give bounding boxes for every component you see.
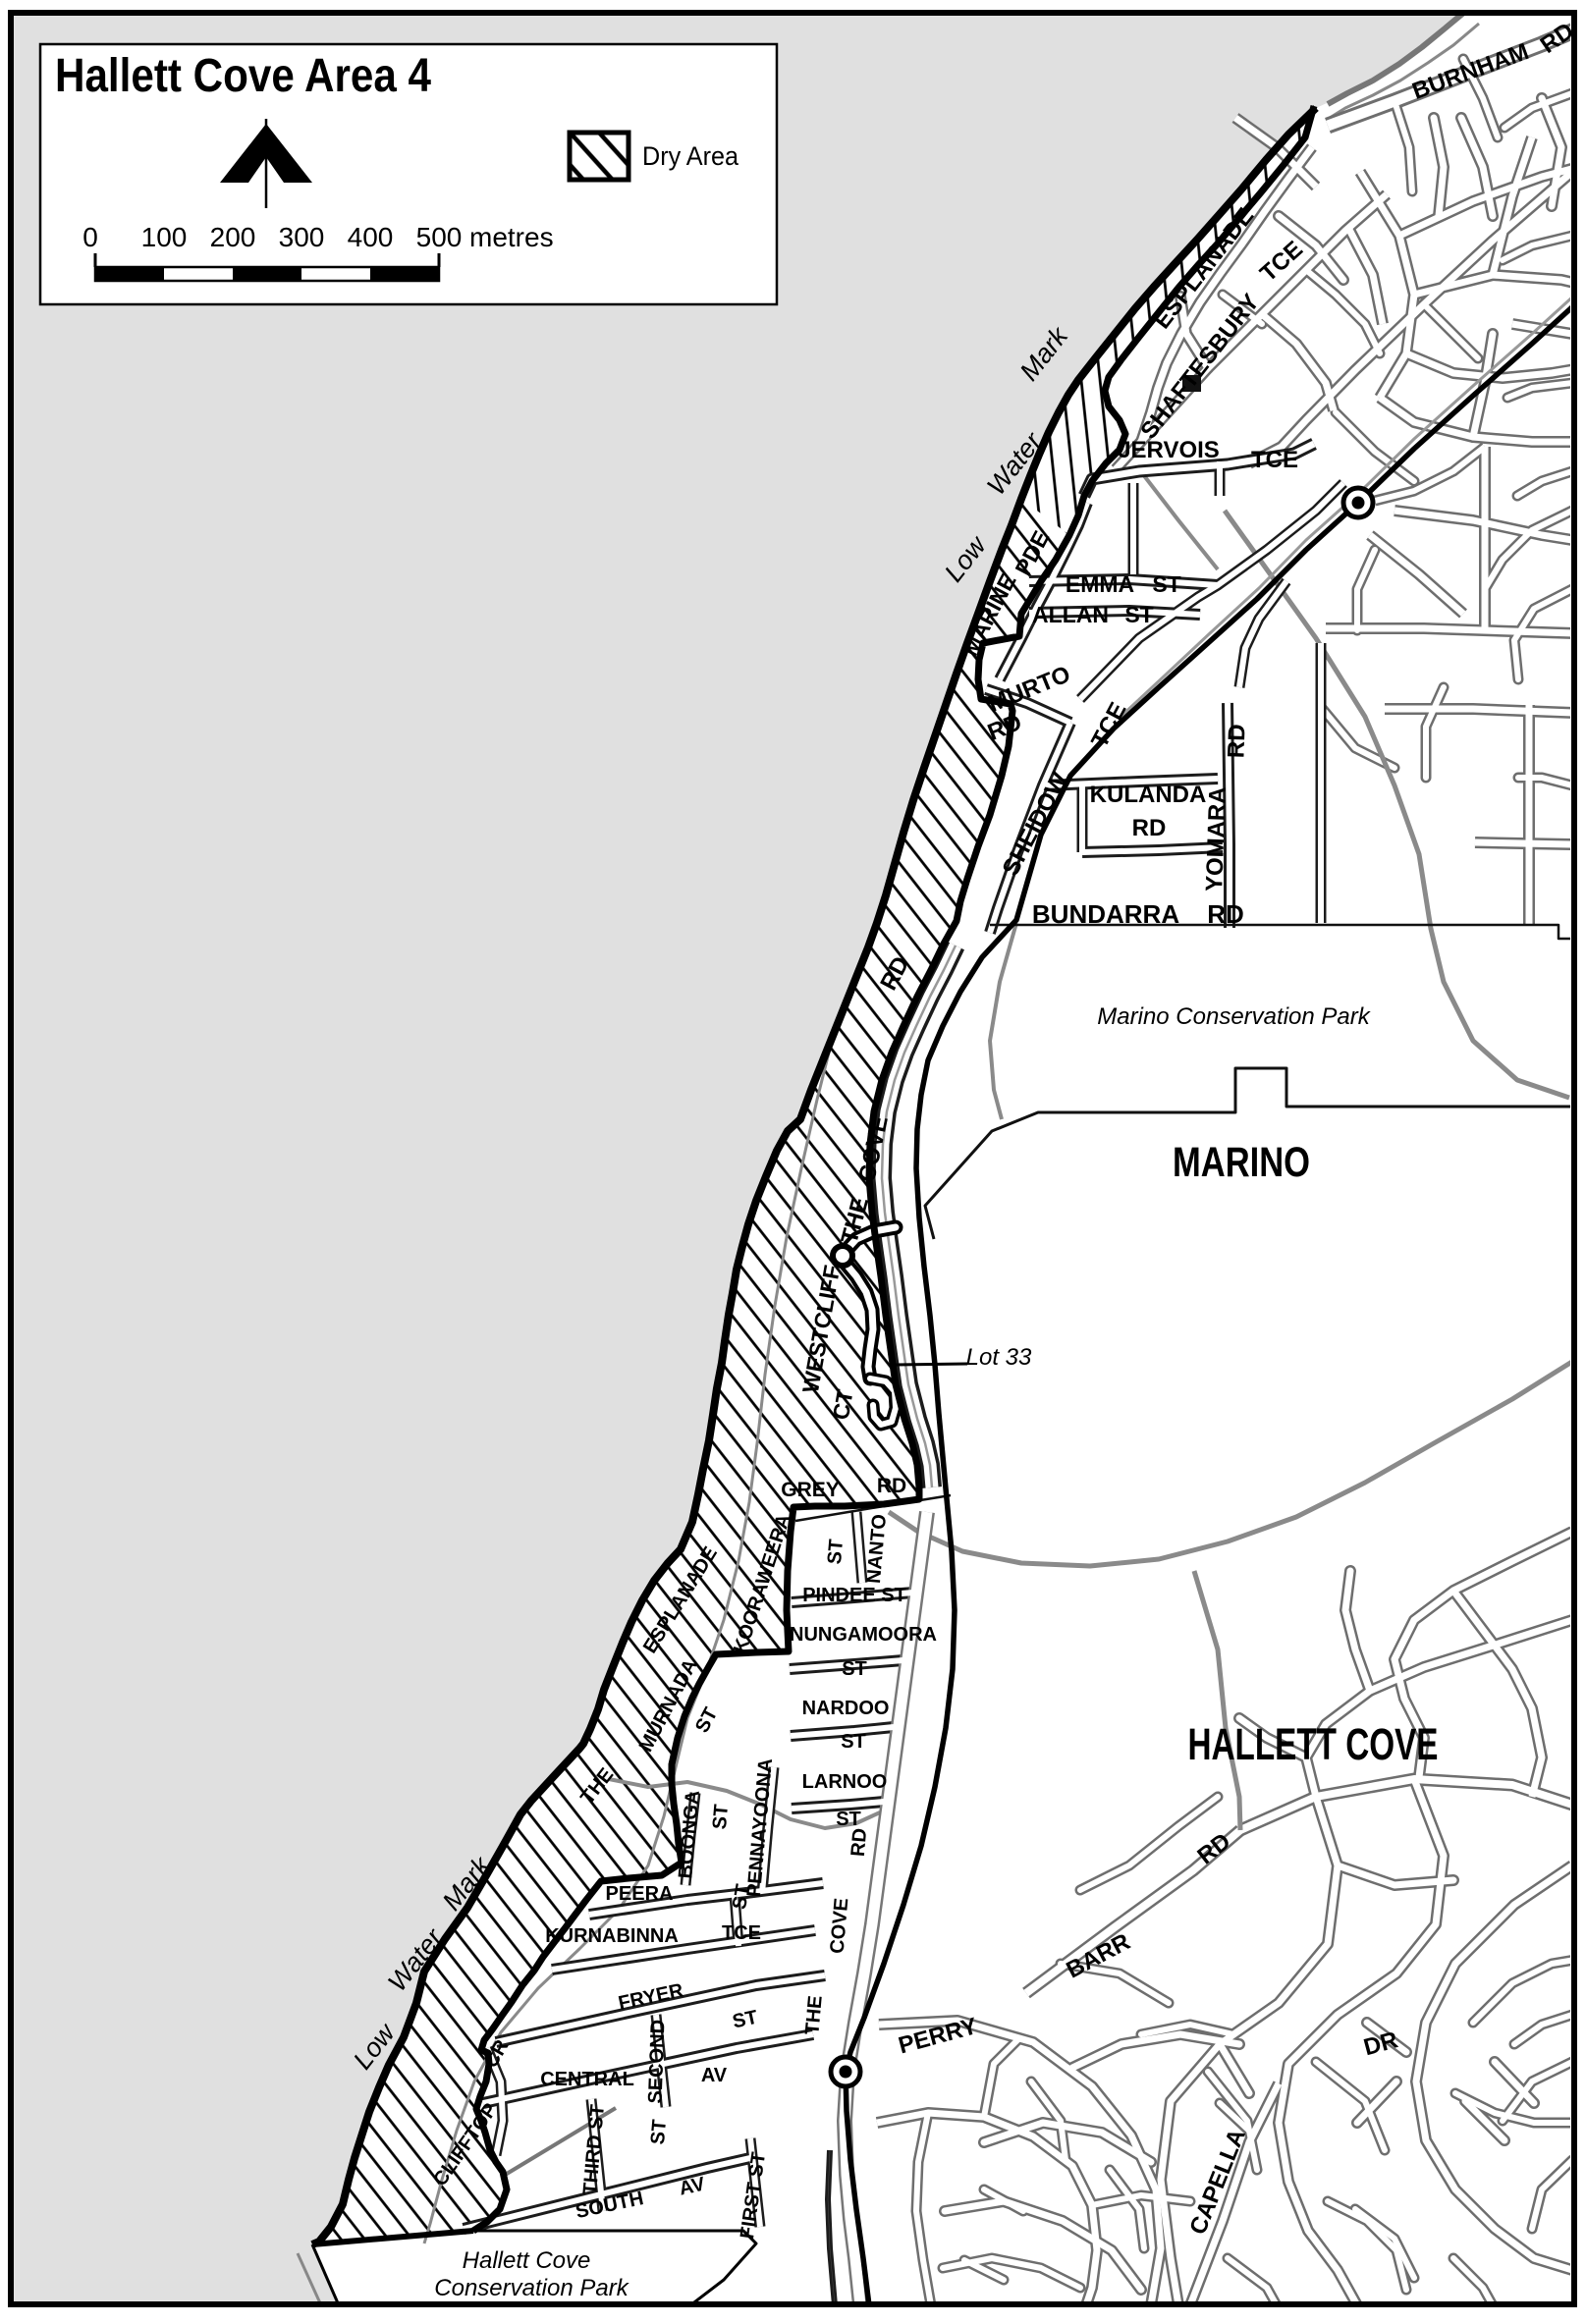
svg-text:CENTRAL: CENTRAL xyxy=(540,2069,634,2090)
svg-text:Conservation Park: Conservation Park xyxy=(434,2275,629,2301)
svg-text:200: 200 xyxy=(210,222,256,252)
svg-text:300: 300 xyxy=(279,222,325,252)
svg-text:NUNGAMOORA: NUNGAMOORA xyxy=(790,1624,937,1646)
svg-text:PEERA: PEERA xyxy=(606,1883,674,1905)
svg-text:GREY: GREY xyxy=(781,1479,840,1501)
svg-text:KURNABINNA: KURNABINNA xyxy=(545,1925,679,1947)
svg-text:ST: ST xyxy=(824,1539,848,1565)
svg-text:MARINO: MARINO xyxy=(1173,1139,1310,1186)
svg-text:Lot 33: Lot 33 xyxy=(966,1344,1032,1371)
svg-text:ST: ST xyxy=(842,1658,867,1680)
svg-text:500: 500 xyxy=(416,222,463,252)
svg-text:ALLAN: ALLAN xyxy=(1032,602,1109,627)
svg-text:100: 100 xyxy=(141,222,188,252)
svg-text:ST: ST xyxy=(1124,602,1153,627)
svg-text:ST: ST xyxy=(729,1882,754,1911)
svg-text:YOMARA: YOMARA xyxy=(1201,786,1231,892)
svg-text:TCE: TCE xyxy=(722,1922,761,1944)
svg-text:RD: RD xyxy=(1132,815,1167,841)
svg-text:SECOND: SECOND xyxy=(645,2020,670,2104)
svg-text:metres: metres xyxy=(469,222,554,252)
svg-text:CT: CT xyxy=(828,1387,858,1422)
svg-text:Dry Area: Dry Area xyxy=(642,141,739,171)
svg-text:PINDEE ST: PINDEE ST xyxy=(802,1585,906,1606)
svg-text:0: 0 xyxy=(82,222,98,252)
svg-text:ST: ST xyxy=(1152,571,1180,597)
svg-text:JERVOIS: JERVOIS xyxy=(1118,437,1220,463)
svg-text:EMMA: EMMA xyxy=(1066,571,1134,597)
svg-text:ST: ST xyxy=(836,1809,861,1830)
svg-text:BUNDARRA: BUNDARRA xyxy=(1032,899,1179,929)
svg-text:400: 400 xyxy=(348,222,394,252)
svg-text:ST: ST xyxy=(647,2119,671,2145)
svg-text:LARNOO: LARNOO xyxy=(802,1771,888,1793)
svg-text:RD: RD xyxy=(1207,899,1244,929)
svg-text:Marino Conservation Park: Marino Conservation Park xyxy=(1097,1003,1371,1030)
svg-text:ST: ST xyxy=(841,1731,866,1753)
svg-text:ST: ST xyxy=(709,1804,733,1830)
svg-text:RD: RD xyxy=(1223,724,1250,759)
svg-text:THE: THE xyxy=(801,1995,826,2036)
svg-text:KULANDA: KULANDA xyxy=(1090,782,1207,808)
svg-text:NARDOO: NARDOO xyxy=(802,1698,890,1719)
svg-text:Hallett Cove Area 4: Hallett Cove Area 4 xyxy=(55,50,431,102)
svg-text:RD: RD xyxy=(877,1475,906,1497)
svg-text:Hallett Cove: Hallett Cove xyxy=(463,2247,591,2274)
svg-text:RD: RD xyxy=(848,1827,871,1858)
svg-text:TCE: TCE xyxy=(1251,447,1298,473)
svg-text:HALLETT COVE: HALLETT COVE xyxy=(1188,1719,1439,1769)
svg-text:AV: AV xyxy=(701,2065,728,2086)
